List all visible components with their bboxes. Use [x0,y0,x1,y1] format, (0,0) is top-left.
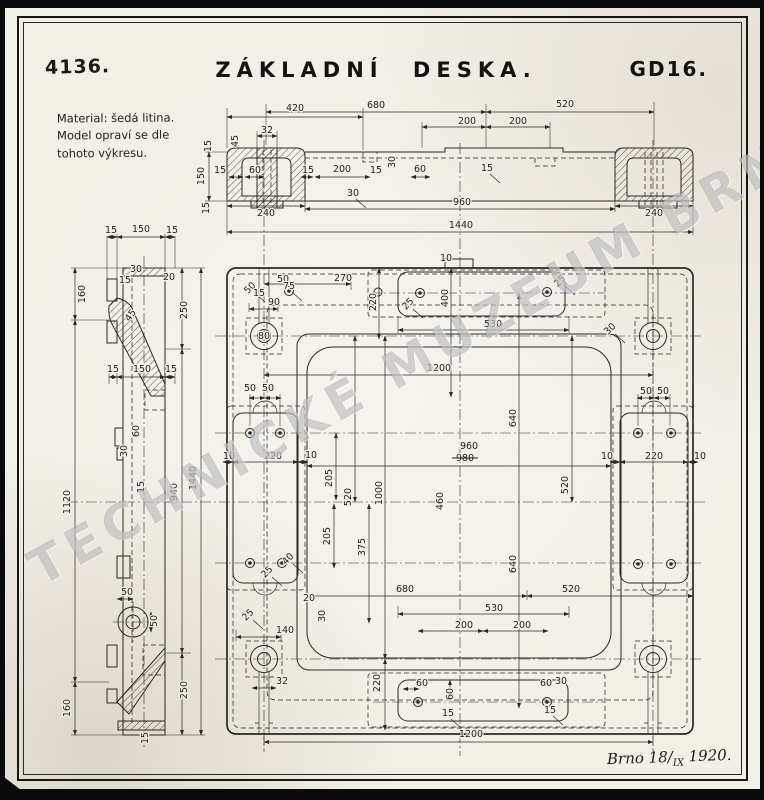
dim-label: 20 [303,593,315,604]
dim-label: 460 [435,492,446,510]
dim-label: 32 [261,125,273,136]
dim-label: 80 [258,331,270,342]
dim-label: 960 [460,441,478,452]
dimension-labels: 4206805202002004532156015200156030301524… [62,99,706,744]
paper: 4136. ZÁKLADNÍ DESKA. GD16. Material: še… [5,8,760,789]
dim-label: 15 [119,275,131,286]
dim-label: 30 [387,156,398,168]
dim-label: 10 [223,451,235,462]
dim-label: 200 [509,116,527,127]
dim-label: 15 [107,364,119,375]
dim-label: 50 [244,383,256,394]
leader-line [253,620,263,629]
dim-label: 640 [508,555,519,573]
dim-label: 50 [262,383,274,394]
dim-label: 520 [560,476,571,494]
dim-label: 205 [324,469,335,487]
dim-label: 960 [453,197,471,208]
dim-label: 220 [368,293,379,311]
dim-label: 200 [513,620,531,631]
dim-label: 530 [484,319,502,330]
dim-label: 15 [302,165,314,176]
dim-label: 15 [165,364,177,375]
dim-label: 15 [136,481,147,493]
dim-label: 1440 [188,466,199,490]
dim-label: 60 [131,425,142,437]
leader-line [490,174,500,183]
dim-label: 400 [440,289,451,307]
dim-label: 1440 [449,220,473,231]
dim-label: 60 [445,688,456,700]
dim-label: 10 [601,451,613,462]
dim-label: 50 [657,386,669,397]
scanned-drawing-page: 4136. ZÁKLADNÍ DESKA. GD16. Material: še… [0,0,764,800]
dim-label: 220 [645,451,663,462]
dim-label: 530 [485,603,503,614]
dim-label: 940 [169,483,180,501]
dim-label: 15 [481,163,493,174]
dim-label: 90 [268,297,280,308]
dim-label: 15 [140,732,151,744]
dim-label: 20 [163,272,175,283]
dim-label: 15 [201,202,212,214]
dim-label: 15 [370,165,382,176]
dim-label: 30 [119,445,130,457]
section-view [205,102,693,235]
dim-label: 15 [203,140,214,152]
dim-label: 520 [556,99,574,110]
drawing-canvas: 4206805202002004532156015200156030301524… [5,8,760,789]
dim-label: 32 [276,676,288,687]
dim-label: 1000 [374,481,385,505]
dim-label: 250 [179,681,190,699]
dim-label: 50 [121,587,133,598]
dim-label: 60 [414,164,426,175]
dim-label: 250 [179,301,190,319]
dim-label: 30 [555,676,567,687]
leader-line [292,292,302,301]
dim-label: 150 [196,167,207,185]
dim-label: 140 [276,625,294,636]
dim-label: 160 [77,285,88,303]
dim-label: 60 [540,678,552,689]
dim-label: 1120 [62,490,73,514]
dim-label: 30 [347,188,359,199]
dim-label: 150 [132,224,150,235]
dim-label: 520 [343,488,354,506]
dim-label: 200 [458,116,476,127]
dim-label: 200 [333,164,351,175]
dim-label: 50 [640,386,652,397]
dim-label: 680 [396,584,414,595]
dim-label: 75 [283,281,295,292]
dim-label: 15 [214,165,226,176]
dim-label: 520 [562,584,580,595]
dim-label: 15 [442,708,454,719]
dim-label: 10 [694,451,706,462]
dim-label: 60 [416,678,428,689]
dim-label: 45 [230,135,241,147]
dim-label: 240 [257,208,275,219]
dim-label: 420 [286,103,304,114]
dim-label: 205 [322,527,333,545]
dim-label: 160 [62,699,73,717]
dim-label: 1200 [427,363,451,374]
dim-label: 220 [372,674,383,692]
dim-label: 10 [305,450,317,461]
dim-label: 375 [357,538,368,556]
leader-line [356,199,366,208]
dim-label: 15 [253,288,265,299]
dim-label: 680 [367,100,385,111]
dim-label: 15 [166,225,178,236]
dim-label: 50 [149,615,160,627]
dim-label: 640 [508,409,519,427]
dim-label: 200 [455,620,473,631]
dim-label: 15 [105,225,117,236]
dim-label: 30 [317,610,328,622]
dim-label: 150 [133,364,151,375]
dim-label: 15 [544,705,556,716]
leader-line [565,286,575,295]
dim-label: 10 [440,253,452,264]
dim-label: 270 [334,273,352,284]
dim-label: 60 [249,165,261,176]
scan-edge-bottom [0,789,764,800]
dim-label: 30 [130,264,142,275]
dim-label: 1200 [459,729,483,740]
dim-label: 240 [645,208,663,219]
dim-label: 220 [264,451,282,462]
